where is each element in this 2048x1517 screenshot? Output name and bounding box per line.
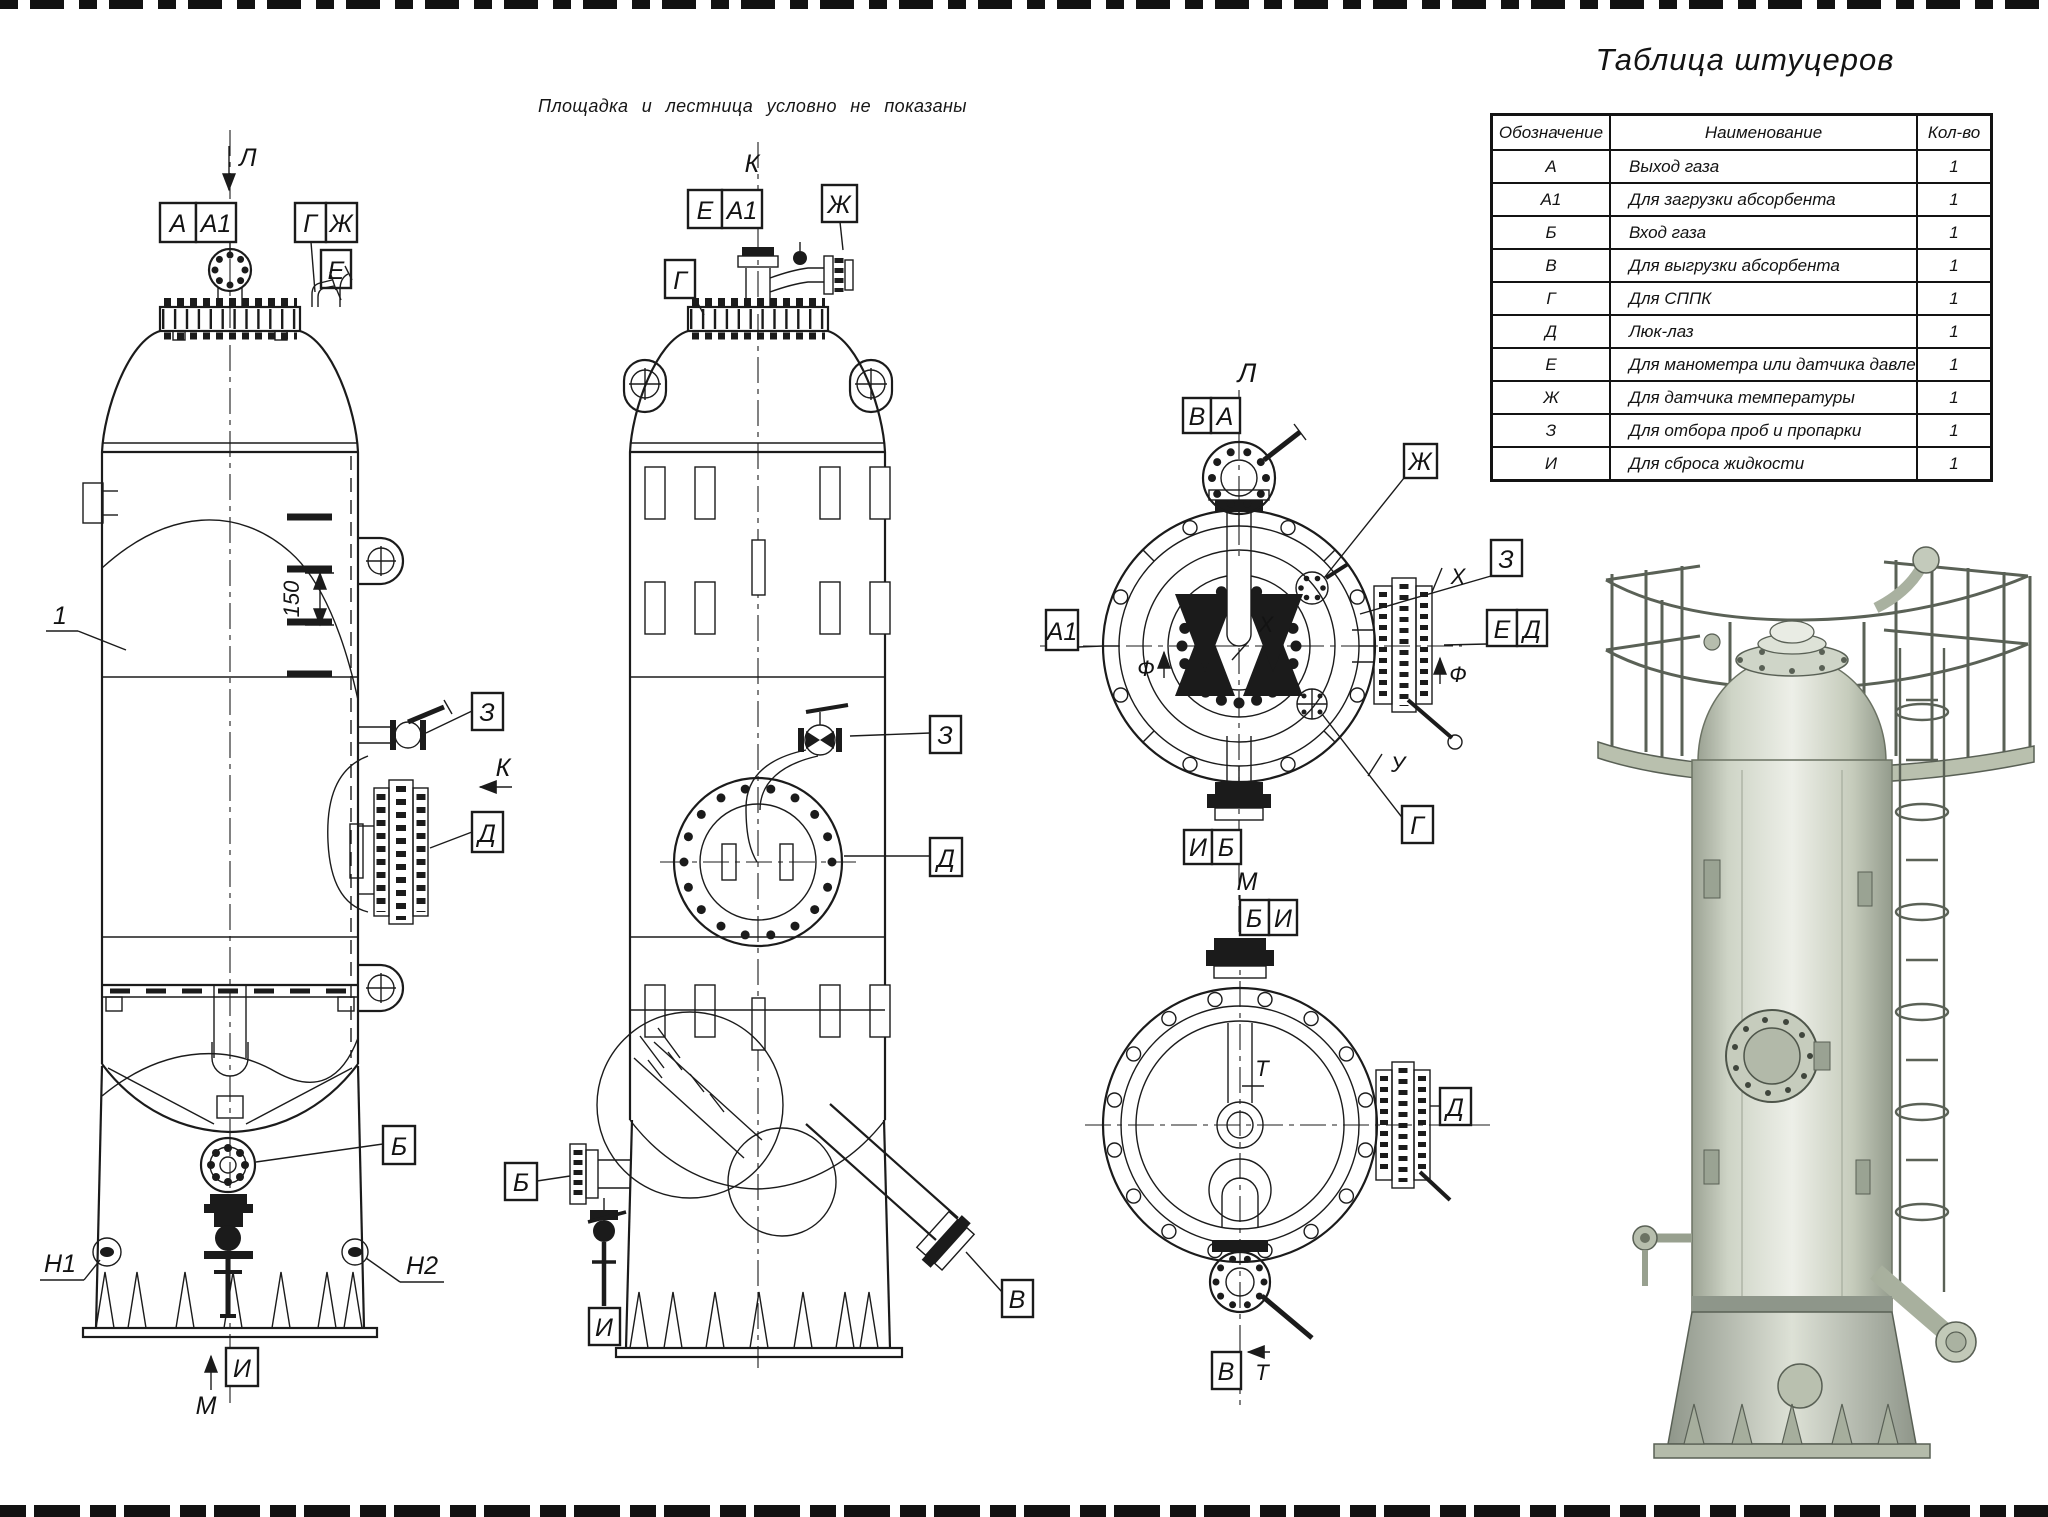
front-label-n2: Н2: [406, 1252, 438, 1280]
svg-text:А1: А1: [1045, 618, 1078, 646]
top-label-g: Г: [1402, 806, 1433, 843]
side-label-zh: Ж: [822, 185, 857, 222]
bottom-label-d: Д: [1440, 1088, 1471, 1125]
top-label-zh: Ж: [1404, 444, 1437, 478]
top-view-title: Л: [1236, 358, 1257, 388]
top-label-d: Д: [1517, 610, 1547, 646]
front-label-n1: Н1: [44, 1250, 76, 1278]
top-label-v: В: [1183, 398, 1211, 433]
side-label-d: Д: [930, 838, 962, 876]
render-3d: [1598, 547, 2034, 1458]
side-view-title: К: [745, 150, 761, 178]
front-k-arrow-label: К: [496, 754, 512, 782]
front-label-a1: А1: [196, 203, 236, 242]
front-elevation-view: Л А А1 Г Ж Е: [40, 130, 512, 1420]
drawing-sheet: Площадка и лестница условно не показаны …: [0, 0, 2048, 1517]
side-label-e: Е: [688, 190, 722, 228]
bottom-dim-t-inner: Т: [1255, 1056, 1270, 1081]
svg-text:Г: Г: [673, 267, 689, 295]
part-callout-1: 1: [53, 602, 67, 630]
svg-text:В: В: [1009, 1286, 1026, 1314]
front-dim-150: 150: [279, 580, 304, 617]
svg-text:В: В: [1218, 1358, 1235, 1386]
svg-text:Е: Е: [1494, 616, 1511, 644]
front-label-b: Б: [383, 1126, 415, 1164]
ladder-cage: [1896, 648, 1948, 1292]
svg-text:В: В: [1189, 403, 1206, 431]
svg-text:Ж: Ж: [328, 210, 355, 238]
svg-text:Е: Е: [697, 197, 714, 225]
svg-text:Д: Д: [1443, 1094, 1464, 1122]
bottom-label-b: Б: [1240, 900, 1269, 935]
top-label-e: Е: [1487, 610, 1517, 646]
svg-text:Г: Г: [1410, 812, 1426, 840]
side-elevation-view: К Е А1 Ж Г: [505, 142, 1033, 1368]
top-dim-u: У: [1390, 752, 1407, 777]
bottom-label-i: И: [1269, 900, 1297, 935]
svg-text:Д: Д: [475, 820, 496, 848]
side-label-g: Г: [665, 260, 695, 298]
svg-text:А1: А1: [725, 197, 758, 225]
bottom-label-v: В: [1212, 1352, 1241, 1389]
front-m-arrow-label: М: [196, 1392, 217, 1420]
top-dim-f-right: Ф: [1449, 662, 1467, 687]
svg-text:И: И: [1274, 905, 1292, 933]
svg-text:Г: Г: [303, 210, 319, 238]
svg-text:И: И: [1189, 834, 1207, 862]
front-label-a: А: [160, 203, 196, 242]
top-label-i: И: [1184, 830, 1212, 864]
side-label-z: З: [930, 716, 961, 753]
top-label-a1: А1: [1045, 610, 1078, 650]
svg-text:А1: А1: [199, 210, 232, 238]
front-label-d: Д: [472, 812, 503, 852]
side-v-flange: [913, 1207, 978, 1274]
top-dim-x-inner: Х: [1258, 612, 1275, 637]
side-label-b: Б: [505, 1163, 537, 1200]
top-dim-x-outer: Х: [1450, 564, 1467, 589]
top-label-a: А: [1211, 398, 1240, 433]
front-label-i: И: [226, 1348, 258, 1386]
bottom-dim-t-outer: Т: [1255, 1360, 1270, 1385]
svg-text:И: И: [595, 1314, 613, 1342]
svg-text:Б: Б: [1218, 834, 1234, 862]
top-dim-f-left: Ф: [1137, 656, 1155, 681]
svg-text:Д: Д: [1520, 616, 1541, 644]
bottom-view-M: М Б И: [1085, 868, 1490, 1406]
top-label-z: З: [1491, 540, 1522, 576]
svg-text:Ж: Ж: [826, 191, 853, 219]
top-view-L: Л В А: [1040, 358, 1547, 940]
svg-text:Д: Д: [934, 845, 955, 873]
front-label-zh: Ж: [326, 203, 357, 242]
side-label-a1: А1: [722, 190, 762, 228]
technical-drawing: Л А А1 Г Ж Е: [0, 0, 2048, 1517]
bottom-view-title: М: [1237, 868, 1258, 896]
side-tray-windows: [645, 467, 890, 1050]
side-label-i: И: [589, 1308, 620, 1345]
svg-text:З: З: [479, 699, 494, 727]
front-label-z: З: [472, 693, 503, 730]
svg-text:А: А: [1215, 403, 1234, 431]
side-label-v: В: [1002, 1280, 1033, 1317]
svg-text:Б: Б: [1246, 905, 1262, 933]
front-label-g: Г: [295, 203, 326, 242]
svg-text:А: А: [168, 210, 187, 238]
front-view-arrow-label: Л: [237, 144, 257, 172]
svg-text:Б: Б: [513, 1169, 529, 1197]
svg-text:Ж: Ж: [1407, 448, 1434, 476]
svg-text:И: И: [233, 1355, 251, 1383]
top-label-b: Б: [1212, 830, 1241, 864]
svg-text:З: З: [937, 722, 952, 750]
svg-text:Б: Б: [391, 1133, 407, 1161]
svg-text:З: З: [1498, 546, 1513, 574]
